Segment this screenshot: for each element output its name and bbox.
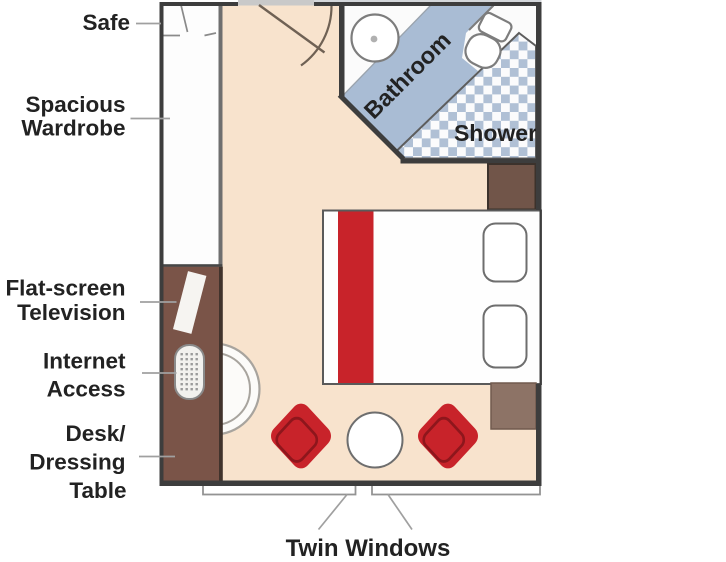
- svg-text:Safe: Safe: [82, 10, 130, 35]
- svg-text:Dressing: Dressing: [29, 450, 125, 475]
- svg-text:Television: Television: [17, 300, 125, 325]
- svg-text:Desk/: Desk/: [65, 421, 126, 446]
- svg-text:Internet: Internet: [43, 349, 126, 374]
- svg-text:Shower: Shower: [454, 120, 537, 146]
- svg-text:Table: Table: [69, 478, 126, 503]
- svg-text:Flat-screen: Flat-screen: [5, 276, 125, 301]
- svg-text:Wardrobe: Wardrobe: [21, 116, 125, 141]
- svg-text:Twin Windows: Twin Windows: [286, 535, 451, 562]
- svg-text:Access: Access: [47, 377, 126, 402]
- svg-text:Spacious: Spacious: [25, 92, 125, 117]
